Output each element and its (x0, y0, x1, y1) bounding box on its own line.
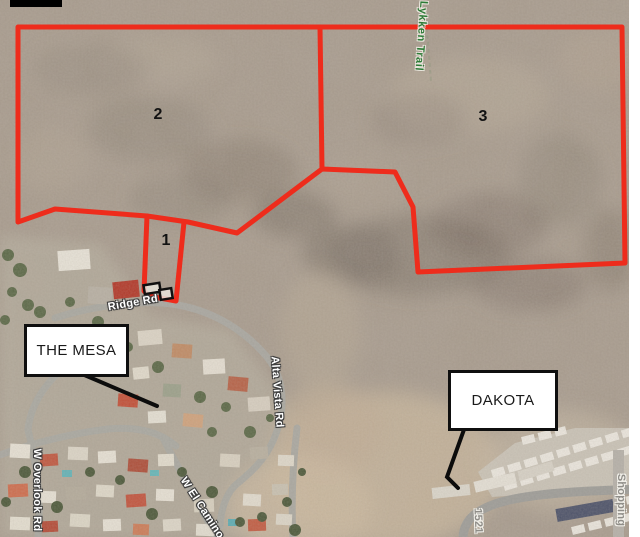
building-footprint-1 (143, 283, 160, 294)
satellite-imagery (0, 0, 640, 537)
callout-dakota-label: DAKOTA (472, 392, 535, 409)
callout-the-mesa-label: THE MESA (37, 342, 117, 359)
annotated-aerial-map: 2 3 1 Lykken Trail Ridge Rd W Overlook R… (0, 0, 640, 537)
callout-dakota: DAKOTA (448, 370, 558, 431)
cropped-label-remnant (10, 0, 62, 7)
building-footprint-2 (159, 288, 172, 300)
callout-the-mesa: THE MESA (24, 324, 129, 377)
parcel-divider-2-3 (320, 27, 322, 169)
right-margin (629, 0, 640, 537)
